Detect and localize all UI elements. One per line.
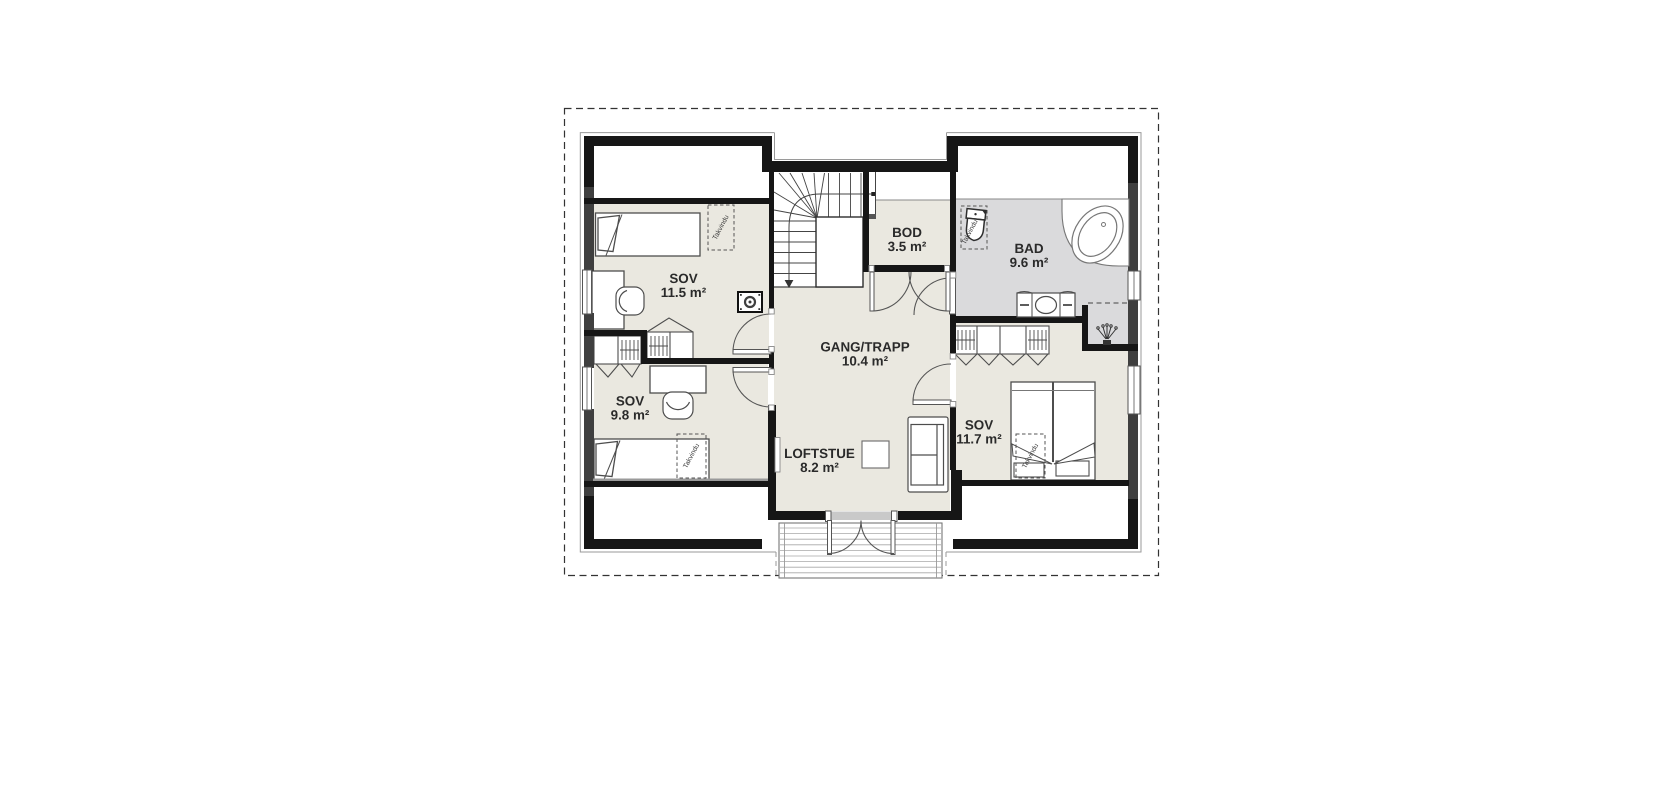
svg-text:9.6 m²: 9.6 m²: [1010, 255, 1049, 270]
svg-text:3.5 m²: 3.5 m²: [888, 239, 927, 254]
svg-text:11.5 m²: 11.5 m²: [661, 285, 707, 300]
svg-text:SOV: SOV: [616, 393, 644, 408]
svg-text:SOV: SOV: [965, 417, 993, 432]
svg-text:9.8 m²: 9.8 m²: [611, 407, 650, 422]
svg-text:BOD: BOD: [892, 225, 922, 240]
svg-text:BAD: BAD: [1014, 241, 1043, 256]
svg-text:SOV: SOV: [669, 271, 697, 286]
svg-text:8.2 m²: 8.2 m²: [800, 460, 839, 475]
svg-text:10.4 m²: 10.4 m²: [842, 353, 889, 368]
svg-text:11.7 m²: 11.7 m²: [956, 431, 1002, 446]
svg-text:GANG/TRAPP: GANG/TRAPP: [820, 339, 909, 354]
svg-text:LOFTSTUE: LOFTSTUE: [784, 446, 855, 461]
